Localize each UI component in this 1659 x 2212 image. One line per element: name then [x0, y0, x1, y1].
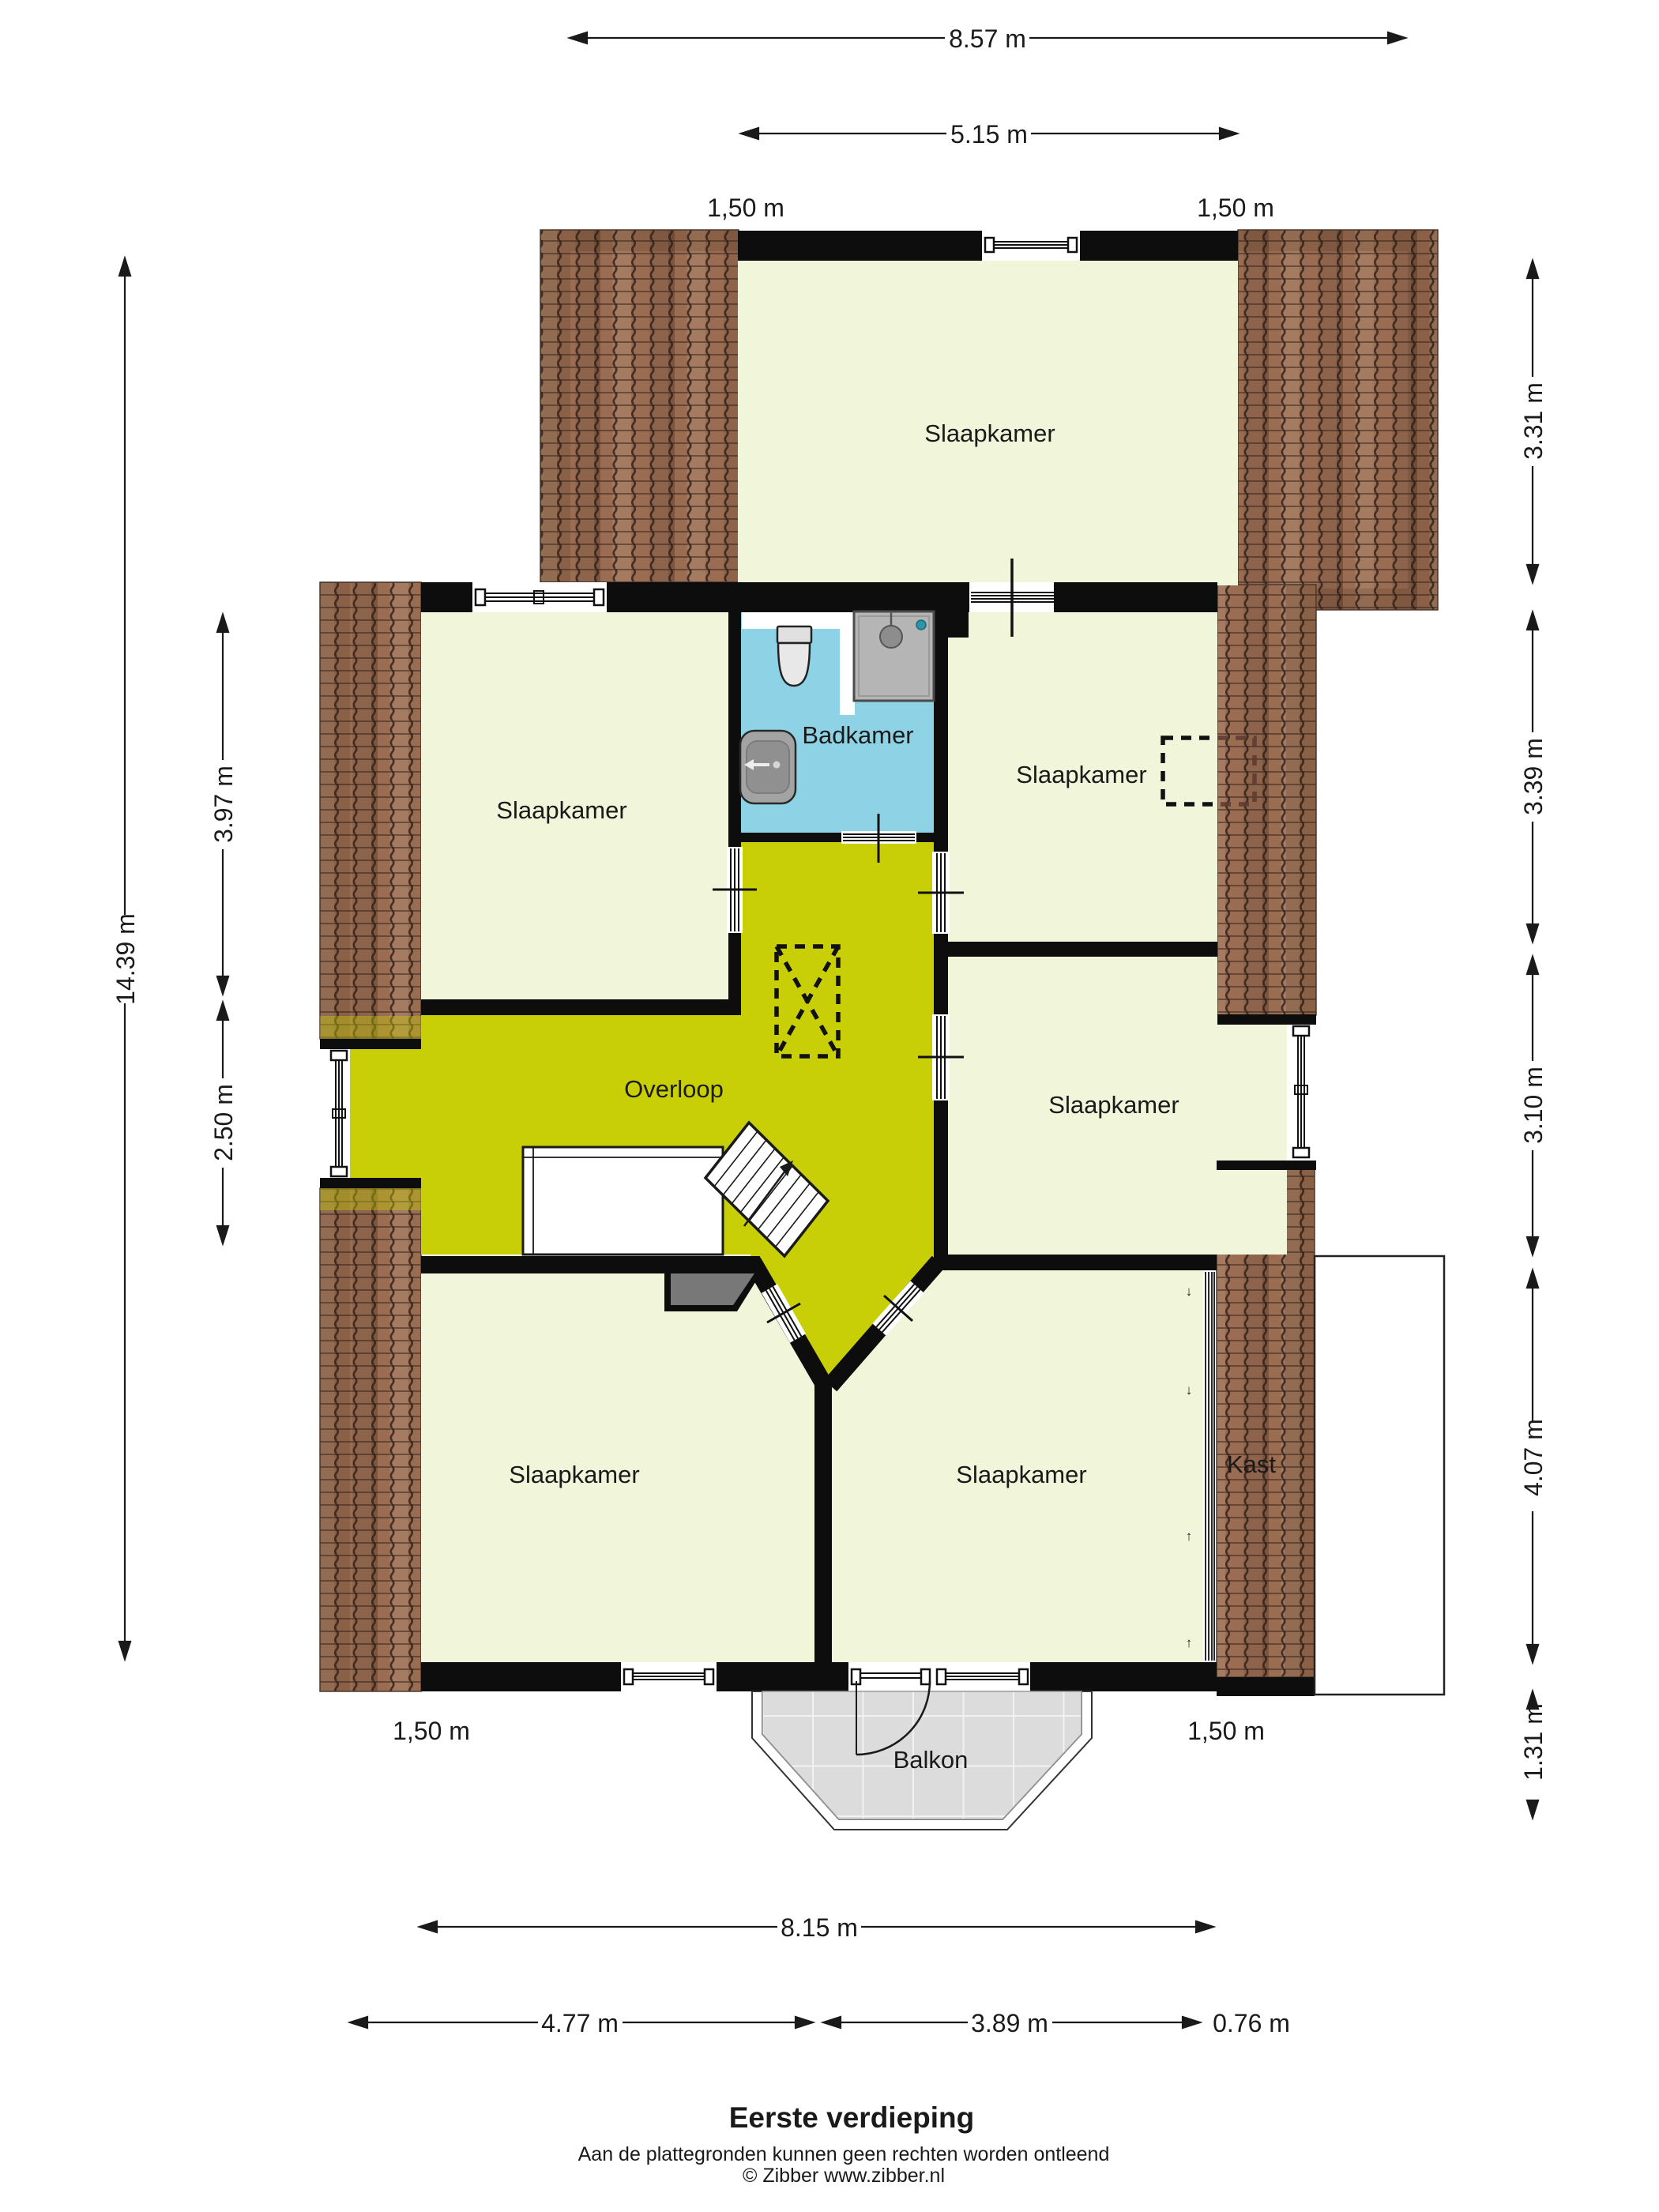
svg-text:Badkamer: Badkamer [802, 721, 913, 749]
svg-text:4.07 m: 4.07 m [1519, 1419, 1548, 1496]
svg-text:Aan de plattegronden kunnen ge: Aan de plattegronden kunnen geen rechten… [578, 2143, 1110, 2165]
svg-text:Kast: Kast [1227, 1450, 1276, 1478]
svg-text:↑: ↑ [1186, 1529, 1193, 1544]
svg-text:↓: ↓ [1186, 1284, 1193, 1299]
svg-text:3.31 m: 3.31 m [1519, 382, 1548, 460]
svg-text:5.15 m: 5.15 m [950, 120, 1028, 149]
svg-text:3.97 m: 3.97 m [209, 766, 238, 843]
svg-text:Slaapkamer: Slaapkamer [924, 419, 1055, 447]
svg-text:8.15 m: 8.15 m [781, 1913, 858, 1942]
svg-text:8.57 m: 8.57 m [949, 24, 1026, 53]
svg-text:0.76 m: 0.76 m [1213, 2009, 1290, 2037]
svg-text:1,50 m: 1,50 m [1187, 1717, 1265, 1745]
svg-text:Slaapkamer: Slaapkamer [1048, 1091, 1179, 1119]
svg-text:3.39 m: 3.39 m [1519, 738, 1548, 815]
svg-text:↓: ↓ [1186, 1382, 1193, 1398]
svg-text:1.31 m: 1.31 m [1519, 1703, 1548, 1781]
svg-text:Overloop: Overloop [624, 1075, 724, 1103]
svg-text:Balkon: Balkon [893, 1746, 969, 1774]
svg-text:↑: ↑ [1186, 1635, 1193, 1650]
svg-text:2.50 m: 2.50 m [209, 1084, 238, 1161]
svg-text:© Zibber www.zibber.nl: © Zibber www.zibber.nl [743, 2165, 945, 2187]
svg-text:14.39 m: 14.39 m [111, 913, 140, 1005]
svg-text:3.10 m: 3.10 m [1519, 1066, 1548, 1144]
svg-text:3.89 m: 3.89 m [971, 2009, 1048, 2037]
svg-text:Slaapkamer: Slaapkamer [956, 1461, 1086, 1488]
svg-text:Slaapkamer: Slaapkamer [496, 796, 626, 824]
svg-text:4.77 m: 4.77 m [541, 2009, 619, 2037]
svg-text:1,50 m: 1,50 m [1197, 194, 1274, 222]
svg-text:Slaapkamer: Slaapkamer [1016, 761, 1146, 788]
svg-text:Eerste verdieping: Eerste verdieping [729, 2101, 975, 2134]
svg-text:Slaapkamer: Slaapkamer [509, 1461, 639, 1488]
svg-text:1,50 m: 1,50 m [393, 1717, 470, 1745]
svg-text:1,50 m: 1,50 m [707, 194, 784, 222]
